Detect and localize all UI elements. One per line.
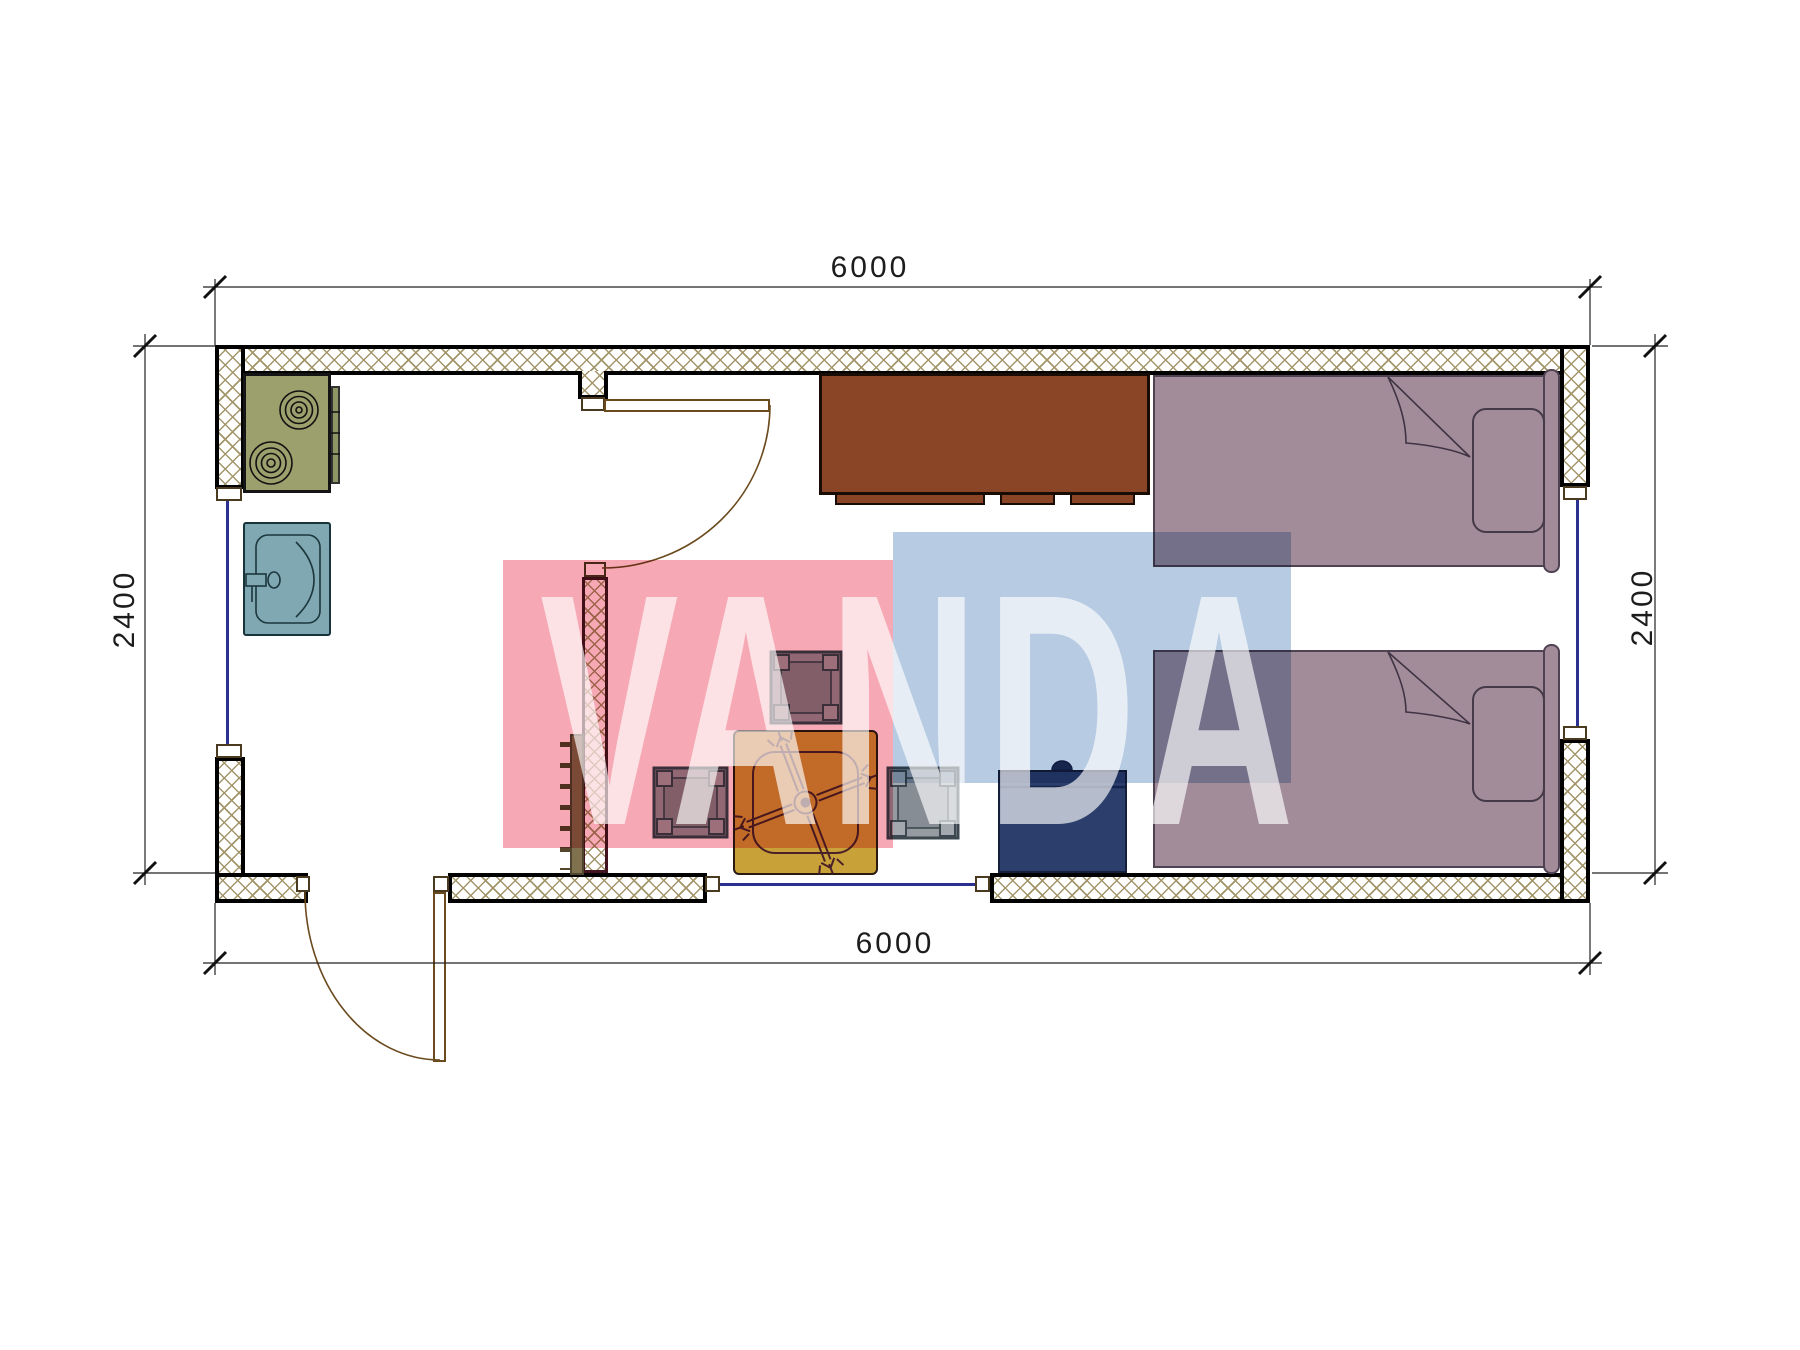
stove-burner-icon xyxy=(250,391,340,484)
blanket-fold xyxy=(1388,377,1470,724)
dimension-label-left: 2400 xyxy=(108,519,142,699)
sink-basin-icon xyxy=(246,535,320,623)
watermark-text: VANDA xyxy=(540,545,1302,875)
dimension-label-top: 6000 xyxy=(780,251,960,285)
dimension-label-bottom: 6000 xyxy=(805,927,985,961)
floor-plan-canvas: 6000 6000 2400 2400 VANDA xyxy=(0,0,1800,1350)
dimension-label-right: 2400 xyxy=(1626,517,1660,697)
